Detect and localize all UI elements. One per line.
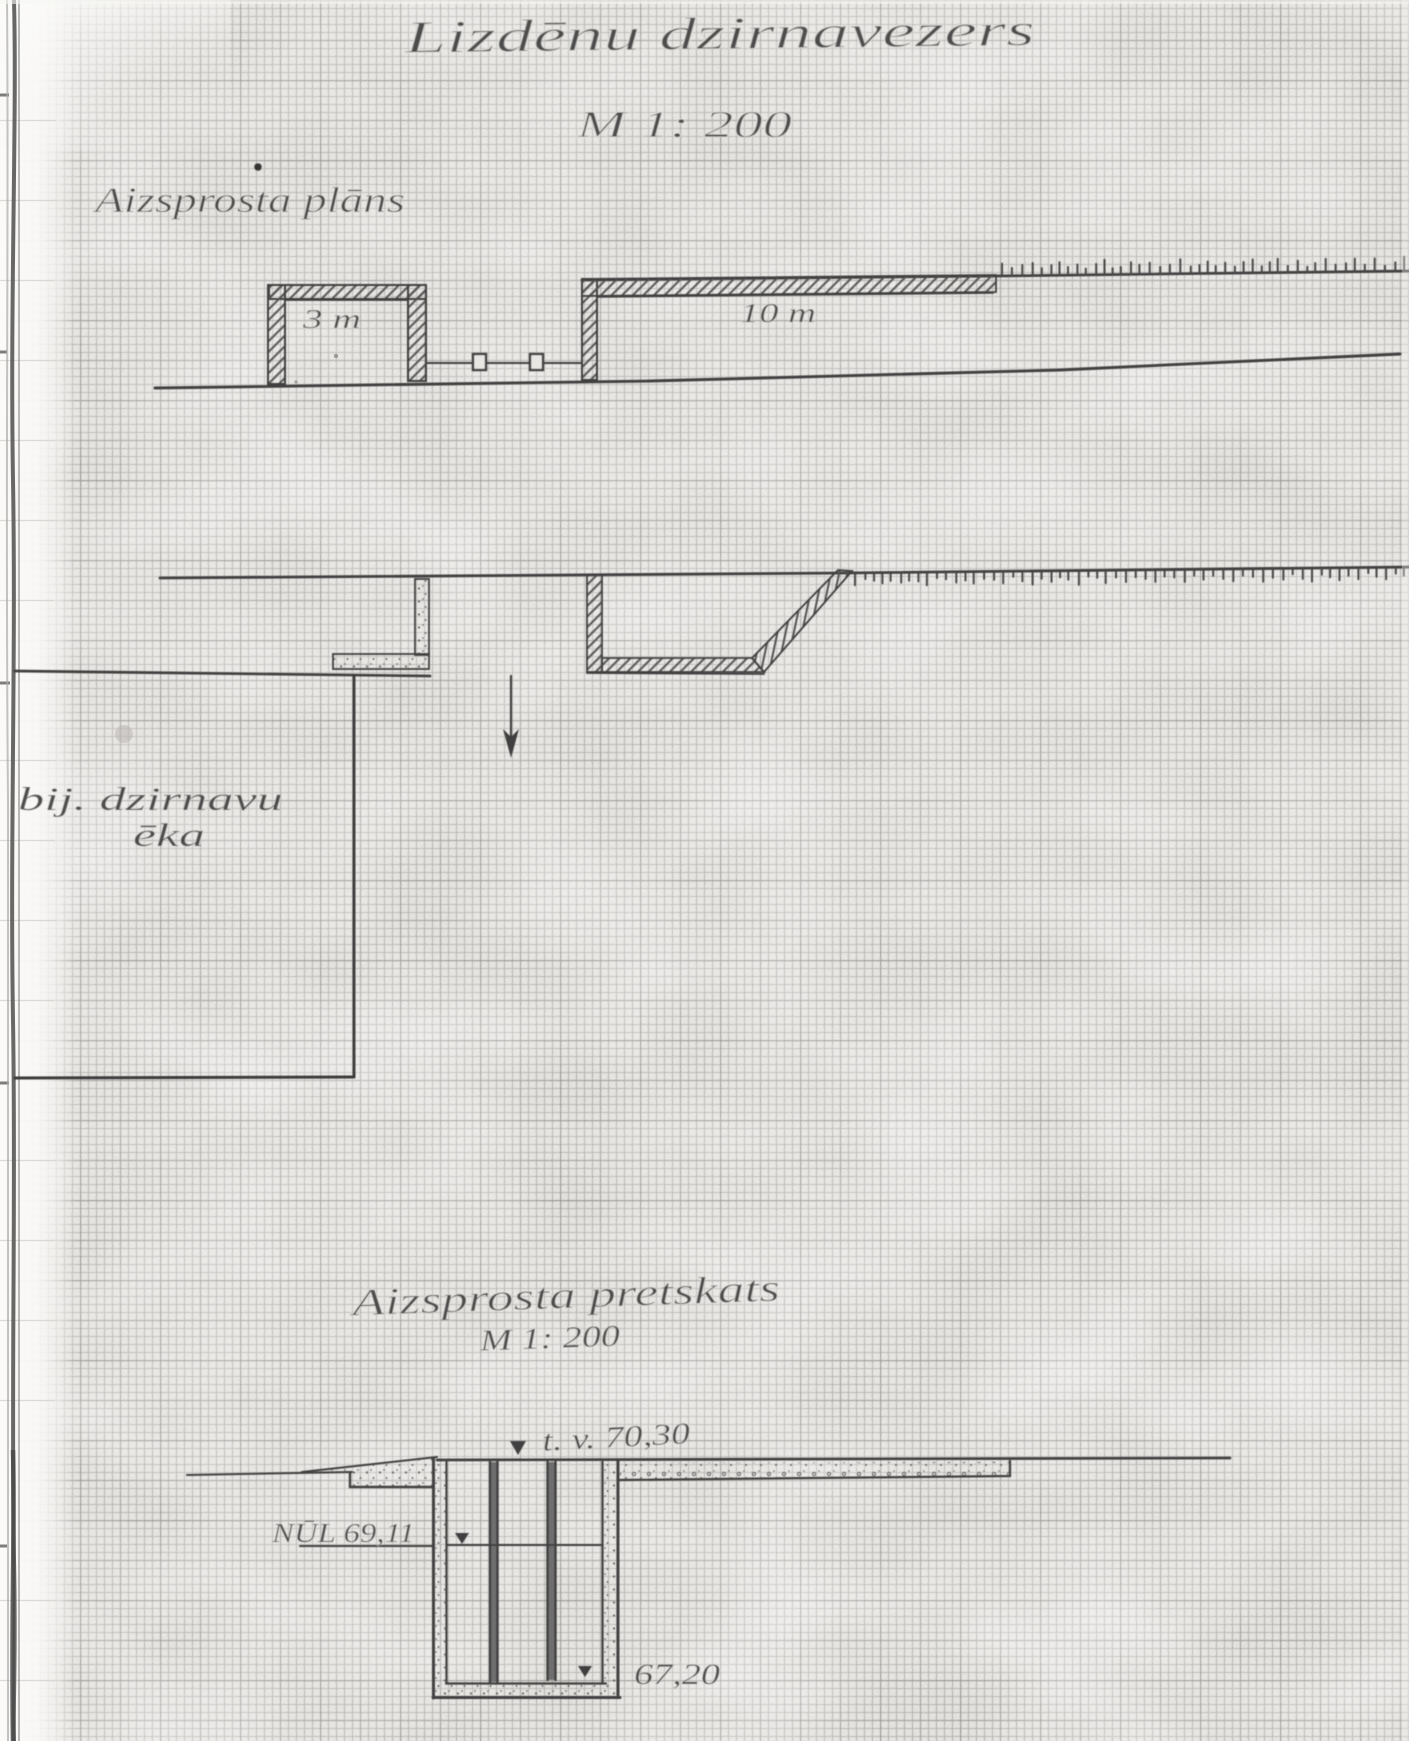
svg-text:ēka: ēka: [133, 818, 205, 854]
svg-text:Lizdēnu dzirnavezers: Lizdēnu dzirnavezers: [403, 4, 1035, 63]
svg-text:bij. dzirnavu: bij. dzirnavu: [18, 782, 283, 818]
svg-text:Aizsprosta plāns: Aizsprosta plāns: [92, 180, 405, 220]
svg-text:3 m: 3 m: [302, 304, 361, 334]
svg-text:67,20: 67,20: [634, 1658, 720, 1691]
svg-text:M 1: 200: M 1: 200: [575, 104, 792, 146]
svg-text:10 m: 10 m: [740, 298, 816, 328]
svg-text:NŪL 69,11: NŪL 69,11: [271, 1518, 415, 1548]
svg-text:M 1: 200: M 1: 200: [478, 1320, 620, 1358]
